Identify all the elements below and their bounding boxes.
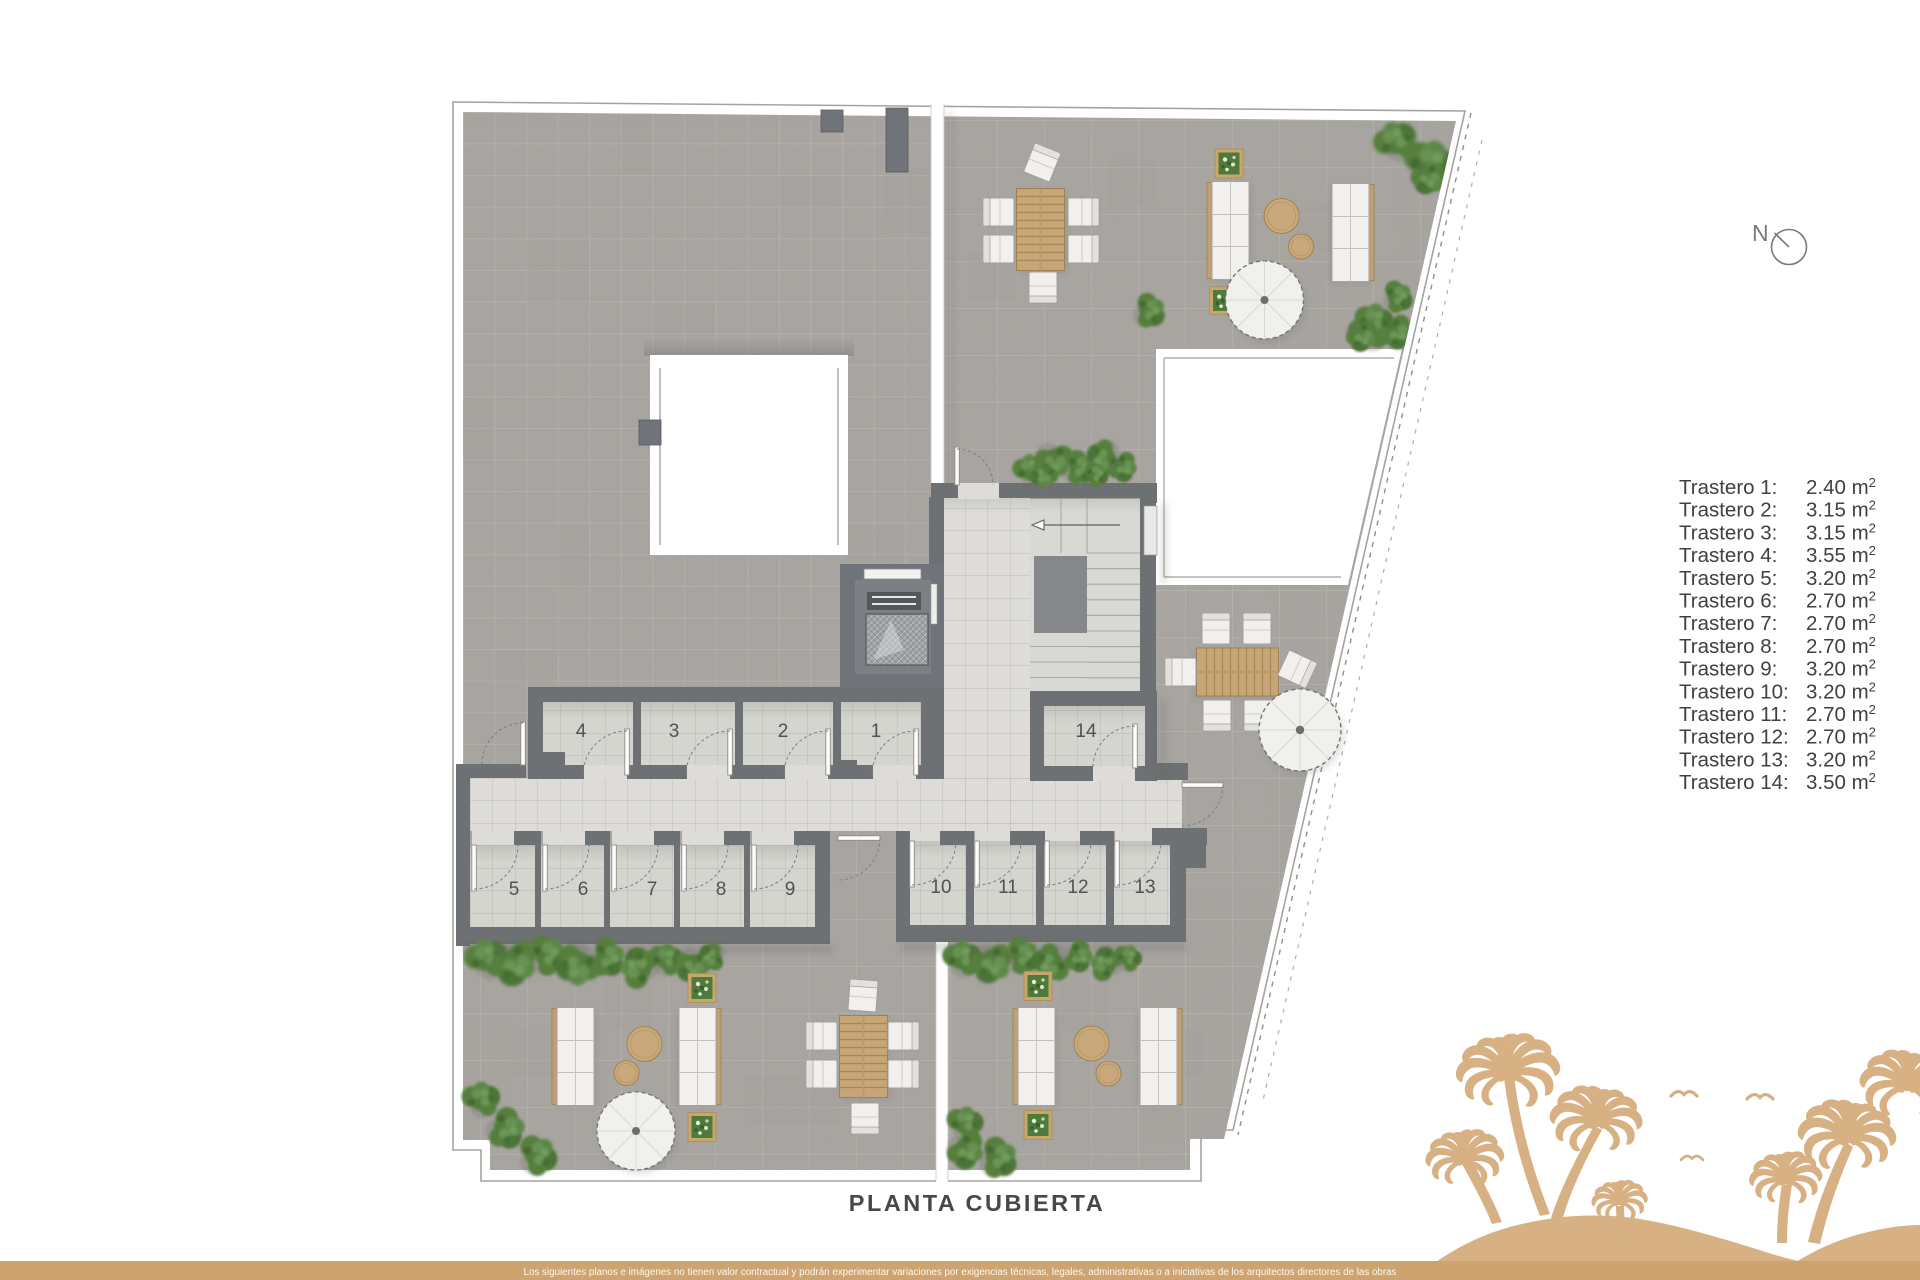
svg-text:Trastero 12:: Trastero 12: <box>1679 726 1789 749</box>
svg-text:Trastero 6:: Trastero 6: <box>1679 590 1777 613</box>
svg-text:4: 4 <box>576 721 587 742</box>
svg-text:3.20 m2: 3.20 m2 <box>1806 566 1876 590</box>
svg-text:7: 7 <box>647 879 658 900</box>
svg-text:1: 1 <box>871 721 882 742</box>
svg-text:5: 5 <box>509 879 520 900</box>
svg-text:12: 12 <box>1067 877 1088 898</box>
svg-text:Trastero 8:: Trastero 8: <box>1679 635 1777 658</box>
svg-text:Trastero 3:: Trastero 3: <box>1679 521 1777 544</box>
svg-text:2.40 m2: 2.40 m2 <box>1806 475 1876 499</box>
svg-text:3: 3 <box>669 721 680 742</box>
svg-text:3.55 m2: 3.55 m2 <box>1806 543 1876 567</box>
svg-text:N: N <box>1752 220 1769 246</box>
svg-text:Trastero 11:: Trastero 11: <box>1679 703 1787 726</box>
svg-text:2.70 m2: 2.70 m2 <box>1806 589 1876 613</box>
svg-text:Trastero 4:: Trastero 4: <box>1679 544 1777 567</box>
svg-text:Trastero 5:: Trastero 5: <box>1679 567 1777 590</box>
svg-text:3.20 m2: 3.20 m2 <box>1806 679 1876 703</box>
svg-text:Trastero 9:: Trastero 9: <box>1679 658 1777 681</box>
svg-text:PLANTA CUBIERTA: PLANTA CUBIERTA <box>849 1190 1105 1216</box>
svg-text:13: 13 <box>1134 877 1155 898</box>
svg-text:2: 2 <box>778 721 789 742</box>
svg-text:Trastero 7:: Trastero 7: <box>1679 612 1777 635</box>
svg-text:2.70 m2: 2.70 m2 <box>1806 702 1876 726</box>
svg-text:3.50 m2: 3.50 m2 <box>1806 770 1876 794</box>
svg-text:6: 6 <box>578 879 589 900</box>
svg-text:2.70 m2: 2.70 m2 <box>1806 611 1876 635</box>
svg-text:Trastero 1:: Trastero 1: <box>1679 476 1777 499</box>
svg-text:2.70 m2: 2.70 m2 <box>1806 634 1876 658</box>
svg-text:3.15 m2: 3.15 m2 <box>1806 498 1876 522</box>
svg-text:Trastero 14:: Trastero 14: <box>1679 771 1789 794</box>
svg-text:3.20 m2: 3.20 m2 <box>1806 657 1876 681</box>
svg-text:Los siguientes planos e imágen: Los siguientes planos e imágenes no tien… <box>524 1267 1397 1278</box>
svg-text:2.70 m2: 2.70 m2 <box>1806 725 1876 749</box>
svg-text:3.20 m2: 3.20 m2 <box>1806 747 1876 771</box>
svg-text:11: 11 <box>998 877 1018 898</box>
svg-text:14: 14 <box>1075 721 1097 742</box>
svg-text:Trastero 13:: Trastero 13: <box>1679 748 1789 771</box>
svg-text:8: 8 <box>716 879 727 900</box>
svg-text:Trastero 10:: Trastero 10: <box>1679 680 1789 703</box>
svg-text:Trastero 2:: Trastero 2: <box>1679 499 1777 522</box>
svg-text:9: 9 <box>785 879 796 900</box>
svg-text:10: 10 <box>930 877 951 898</box>
svg-text:3.15 m2: 3.15 m2 <box>1806 520 1876 544</box>
